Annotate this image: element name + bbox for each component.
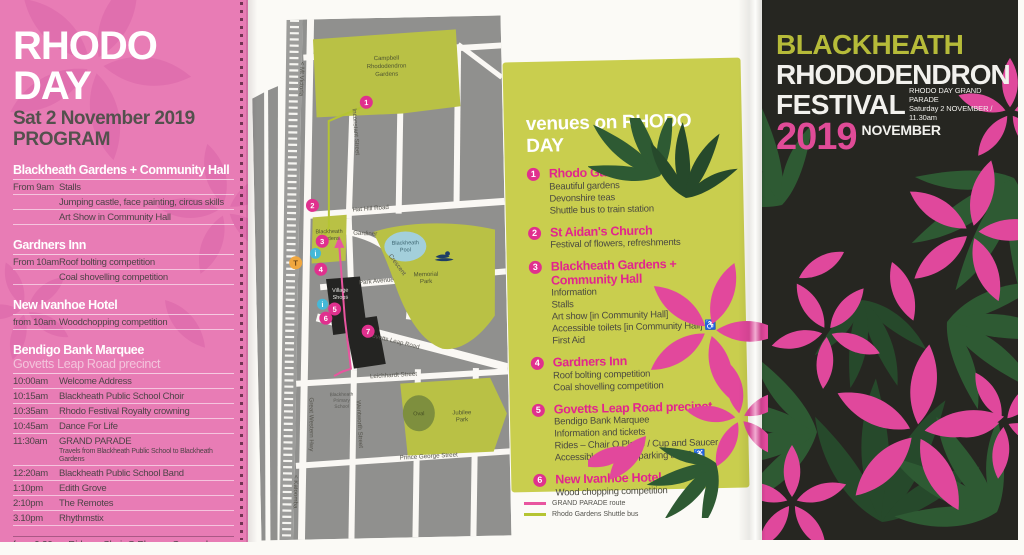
svg-text:T: T xyxy=(293,259,298,268)
section-heading: Bendigo Bank Marquee xyxy=(13,343,234,357)
venues-panel: venues on RHODO DAY 1 Rhodo Gardens Beau… xyxy=(503,58,750,493)
venue-item-gardners-inn: 4 Gardners Inn Roof bolting competition … xyxy=(531,353,730,395)
venues-title: venues on RHODO DAY xyxy=(526,110,725,158)
schedule-row: Art Show in Community Hall xyxy=(13,210,234,225)
schedule-row: 3.10pm Rhythmstix xyxy=(13,511,234,526)
svg-text:1: 1 xyxy=(364,98,368,107)
cover-title-festival: FESTIVAL xyxy=(776,90,905,120)
brochure-scan: RHODO DAY Sat 2 November 2019 PROGRAM Bl… xyxy=(0,0,1024,555)
schedule-row: 10:45am Dance For Life xyxy=(13,419,234,434)
svg-text:Primary: Primary xyxy=(333,398,350,404)
venue-item-govetts-leap: 5 Govetts Leap Road precinct Bendigo Ban… xyxy=(532,399,731,465)
legend-parade-route: GRAND PARADE route xyxy=(524,500,638,507)
svg-text:Gardens: Gardens xyxy=(375,72,398,78)
section-heading: Gardners Inn xyxy=(13,238,234,255)
section-subheading: Govetts Leap Road precinct xyxy=(13,357,234,374)
cover-title-blackheath: BLACKHEATH xyxy=(776,30,1011,60)
shuttle-route-swatch xyxy=(524,513,546,516)
program-section-bendigo-marquee: Bendigo Bank Marquee Govetts Leap Road p… xyxy=(13,343,234,526)
gardiner-crescent-label: Gardiner xyxy=(353,230,377,238)
legend-shuttle-route: Rhodo Gardens Shuttle bus xyxy=(524,511,638,518)
section-heading: New Ivanhoe Hotel xyxy=(13,298,234,315)
svg-text:Park: Park xyxy=(420,279,433,285)
program-panel: RHODO DAY Sat 2 November 2019 PROGRAM Bl… xyxy=(0,0,248,542)
venue-item-new-ivanhoe: 6 New Ivanhoe Hotel Wood chopping compet… xyxy=(533,470,731,500)
svg-text:School: School xyxy=(334,404,349,410)
schedule-row: Jumping castle, face painting, circus sk… xyxy=(13,195,234,210)
schedule-row: 2:10pm The Remotes xyxy=(13,496,234,511)
rides-line: from 9.30am Rides – Chair O Plane + Cup … xyxy=(13,536,234,542)
schedule-row-grand-parade: 11:30am GRAND PARADE Travels from Blackh… xyxy=(13,434,234,466)
venue-number-badge: 2 xyxy=(528,226,541,239)
venue-number-badge: 3 xyxy=(529,261,542,274)
pool-label: Blackheath xyxy=(392,240,419,247)
svg-text:i: i xyxy=(314,249,316,258)
program-section-new-ivanhoe: New Ivanhoe Hotel from 10am Woodchopping… xyxy=(13,298,234,330)
parade-route-swatch xyxy=(524,502,546,505)
svg-text:i: i xyxy=(321,300,323,309)
svg-text:Rhododendron: Rhododendron xyxy=(367,63,407,70)
memorial-park-label: Memorial xyxy=(414,272,439,279)
schedule-row: From 10am Roof bolting competition xyxy=(13,255,234,270)
map-legend: GRAND PARADE route Rhodo Gardens Shuttle… xyxy=(524,500,638,522)
svg-text:7: 7 xyxy=(366,327,370,336)
great-western-hwy-label: Great Western Hwy xyxy=(307,398,314,453)
venue-number-badge: 6 xyxy=(533,474,546,487)
program-section-blackheath-gardens: Blackheath Gardens + Community Hall From… xyxy=(13,163,234,225)
svg-text:2: 2 xyxy=(310,201,314,210)
oval-label: Oval xyxy=(413,411,424,417)
perforation-line xyxy=(240,2,243,540)
village-shops-label: Village xyxy=(332,288,349,294)
cover-month: NOVEMBER xyxy=(862,122,941,138)
section-heading: Blackheath Gardens + Community Hall xyxy=(13,163,234,180)
venue-number-badge: 4 xyxy=(531,357,544,370)
primary-school-label: Blackheath xyxy=(330,392,354,399)
schedule-row: 10:00am Welcome Address xyxy=(13,374,234,389)
schedule-row: 10:15am Blackheath Public School Choir xyxy=(13,389,234,404)
katoomba-label: < Katoomba xyxy=(292,475,299,509)
program-subtitle: PROGRAM xyxy=(13,129,234,150)
svg-text:6: 6 xyxy=(324,314,328,323)
svg-text:Park: Park xyxy=(456,417,469,423)
jubilee-park-label: Jubilee xyxy=(452,410,472,416)
program-title: RHODO DAY xyxy=(13,26,234,106)
blackheath-gardens-label: Blackheath xyxy=(315,229,342,236)
venue-number-badge: 5 xyxy=(532,403,545,416)
cover-title-block: BLACKHEATH RHODODENDRON FESTIVAL RHODO D… xyxy=(776,30,1011,154)
schedule-row: 1:10pm Edith Grove xyxy=(13,481,234,496)
venue-item-blackheath-gardens: 3 Blackheath Gardens + Community Hall In… xyxy=(529,257,729,348)
schedule-row: 10:35am Rhodo Festival Royalty crowning xyxy=(13,404,234,419)
svg-text:5: 5 xyxy=(332,305,336,314)
cover-parade-info: RHODO DAY GRAND PARADE Saturday 2 NOVEMB… xyxy=(909,86,1011,122)
grand-parade-label: GRAND PARADE xyxy=(59,436,131,447)
program-date: Sat 2 November 2019 xyxy=(13,108,234,129)
svg-text:3: 3 xyxy=(320,237,324,246)
schedule-row: 12:20am Blackheath Public School Band xyxy=(13,466,234,481)
grand-parade-note: Travels from Blackheath Public School to… xyxy=(59,448,234,464)
svg-text:Pool: Pool xyxy=(400,247,411,253)
venue-item-st-aidans: 2 St Aidan's Church Festival of flowers,… xyxy=(528,222,726,252)
cover-panel: BLACKHEATH RHODODENDRON FESTIVAL RHODO D… xyxy=(762,0,1018,540)
cover-year: 2019 xyxy=(776,120,857,154)
schedule-row: from 10am Woodchopping competition xyxy=(13,315,234,330)
street-map: < Mt Victoria < Katoomba Inconstant Stre… xyxy=(251,15,512,540)
venue-item-rhodo-gardens: 1 Rhodo Gardens Beautiful gardens Devons… xyxy=(527,164,726,218)
schedule-row: From 9am Stalls xyxy=(13,180,234,195)
program-section-gardners-inn: Gardners Inn From 10am Roof bolting comp… xyxy=(13,238,234,285)
svg-text:Shops: Shops xyxy=(333,295,349,301)
schedule-row: Coal shovelling competition xyxy=(13,270,234,285)
mt-victoria-label: < Mt Victoria xyxy=(297,62,305,97)
venue-number-badge: 1 xyxy=(527,168,540,181)
campbell-gardens-label: Campbell xyxy=(374,56,399,63)
